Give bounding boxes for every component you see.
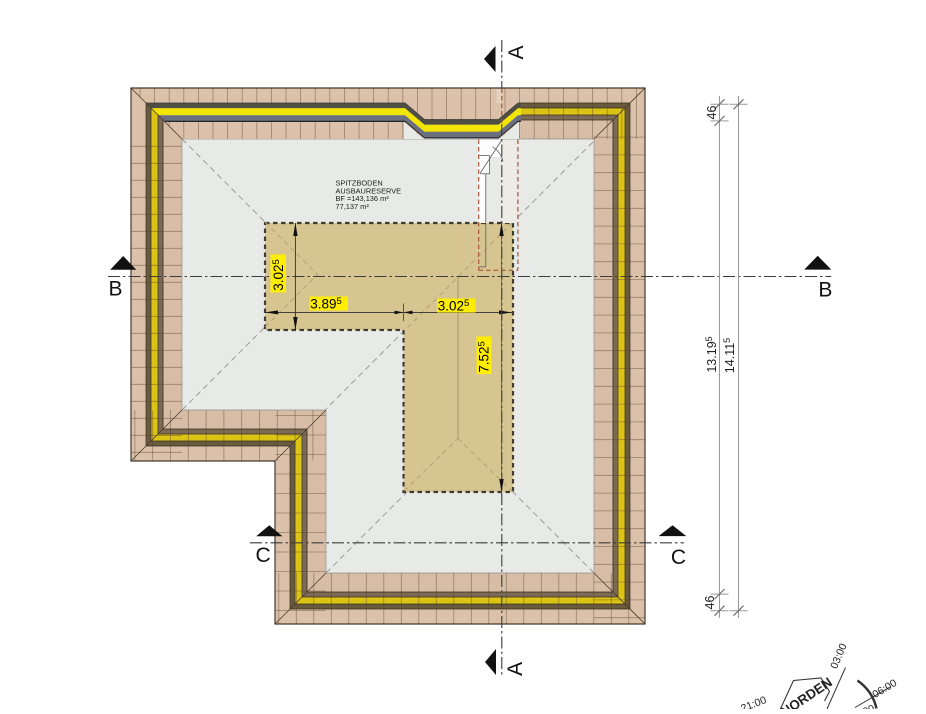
svg-text:A: A xyxy=(505,45,528,59)
svg-text:C: C xyxy=(256,544,271,567)
svg-text:C: C xyxy=(671,546,686,569)
svg-text:06:00: 06:00 xyxy=(870,677,899,701)
svg-text:03:00: 03:00 xyxy=(828,642,849,671)
svg-text:B: B xyxy=(818,278,832,301)
svg-text:A: A xyxy=(504,662,527,676)
svg-text:46: 46 xyxy=(703,596,717,610)
svg-text:77,137 m²: 77,137 m² xyxy=(336,202,370,211)
svg-text:21:00: 21:00 xyxy=(739,694,768,709)
svg-text:14.115: 14.115 xyxy=(722,338,737,373)
svg-text:46: 46 xyxy=(705,106,719,120)
svg-text:B: B xyxy=(108,277,122,300)
svg-text:13.195: 13.195 xyxy=(704,336,719,372)
